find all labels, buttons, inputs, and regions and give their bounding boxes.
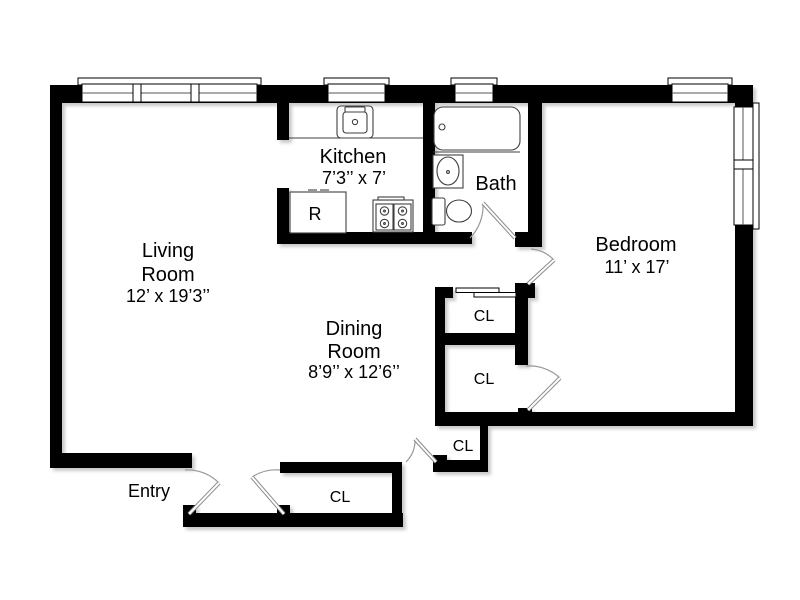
hall-closet-label: CL [474, 308, 495, 325]
bathtub [433, 107, 520, 152]
kitchen-window [324, 78, 389, 102]
wall-bathdoor-stub [515, 232, 542, 247]
kitchen-dimensions: 7’3’’ x 7’ [322, 168, 386, 188]
living-room-window [78, 78, 261, 102]
wall-bedroom-bottom [437, 412, 753, 426]
bath-name: Bath [475, 173, 516, 195]
living-room-dimensions: 12’ x 19’3’’ [126, 286, 210, 306]
wall-between-closets [435, 333, 528, 345]
bedroom-closet-door [526, 366, 560, 410]
bath-sink [433, 155, 463, 188]
wall-bottom [183, 513, 403, 527]
wall-bedroomdoor-stub [515, 283, 535, 298]
dining-room-label: Dining Room 8’9’’ x 12’6’’ [308, 318, 400, 382]
living-room-name-line1: Living [142, 240, 194, 262]
small-closet-label: CL [453, 438, 474, 455]
bottom-closet-label: CL [330, 489, 351, 506]
wall-left [50, 85, 62, 468]
entry-name: Entry [128, 481, 170, 501]
wall-kitchen-bath-bottom [277, 232, 472, 244]
entry-label: Entry [128, 481, 170, 501]
kitchen-sink [337, 106, 373, 138]
bedroom-right-window [734, 103, 759, 229]
dining-room-name-line2: Room [327, 341, 380, 363]
window-mullion [133, 84, 141, 102]
small-closet-door [406, 439, 436, 462]
wall-livingroom-bottom [50, 453, 192, 468]
wall-slider-left-stub [435, 287, 453, 298]
floorplan-svg: Living Room 12’ x 19’3’’ Dining Room 8’9… [0, 0, 800, 600]
window-mullion [734, 160, 753, 169]
floorplan-page: Living Room 12’ x 19’3’’ Dining Room 8’9… [0, 0, 800, 600]
living-room-name-line2: Room [141, 264, 194, 286]
bottom-closet-door [252, 470, 284, 514]
wall-closets-left [435, 287, 445, 426]
walls [50, 85, 753, 527]
toilet [432, 198, 472, 225]
bath-window [451, 78, 497, 102]
window-mullion [191, 84, 199, 102]
kitchen-label: Kitchen 7’3’’ x 7’ [320, 146, 387, 188]
wall-kitchen-left-upper [277, 100, 289, 140]
bedroom-label: Bedroom 11’ x 17’ [595, 234, 676, 277]
wall-bottom-closet-right [392, 473, 402, 518]
stove [373, 197, 413, 232]
hall-closet-sliding-door [456, 288, 516, 297]
bedroom-top-window [668, 78, 732, 102]
wall-closets-right [515, 298, 528, 365]
bath-door [470, 203, 515, 238]
refrigerator-label: R [309, 204, 322, 224]
dining-room-name-line1: Dining [326, 318, 383, 340]
bedroom-dimensions: 11’ x 17’ [604, 257, 669, 277]
bedroom-name: Bedroom [595, 234, 676, 256]
bath-label: Bath [475, 173, 516, 195]
bedroom-door [528, 249, 554, 284]
dining-room-dimensions: 8’9’’ x 12’6’’ [308, 362, 400, 382]
kitchen-name: Kitchen [320, 146, 387, 168]
living-room-label: Living Room 12’ x 19’3’’ [126, 240, 210, 306]
wall-bedroom-left [528, 100, 542, 233]
bedroom-closet-label: CL [474, 371, 495, 388]
wall-bottom-closet-top [280, 462, 402, 473]
